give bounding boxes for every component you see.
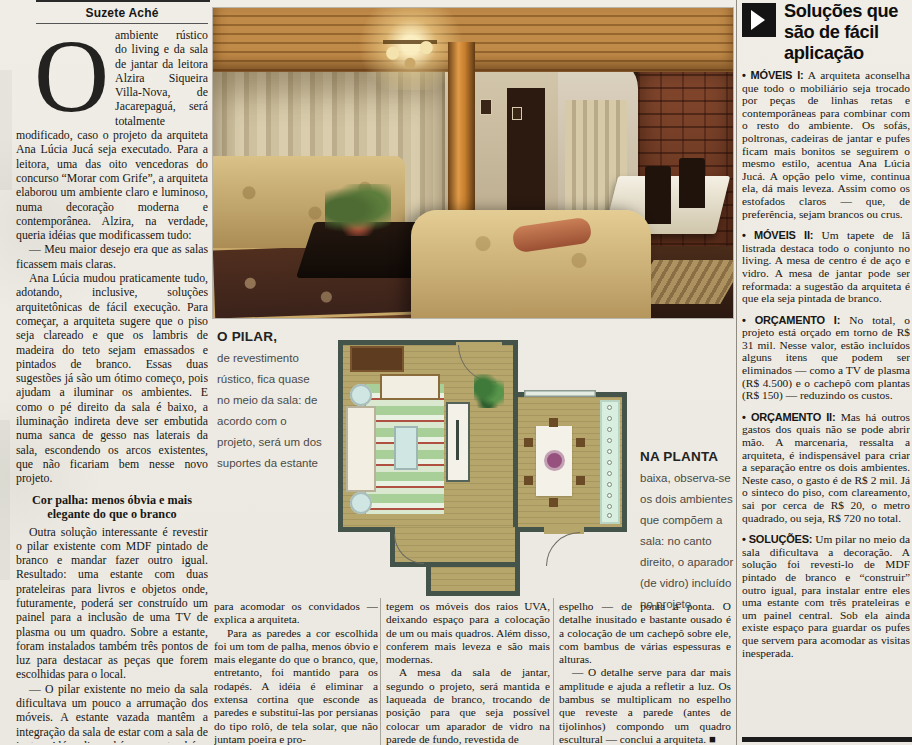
plan-table-centerpiece <box>547 453 562 468</box>
col4-paragraph-1: espelho — de ponta a ponta. O detalhe in… <box>559 600 731 666</box>
plan-estante <box>448 404 468 480</box>
sidebar-item-text: Um pilar no meio da sala dificultava a d… <box>742 533 910 658</box>
photo-dining-chair <box>645 166 671 224</box>
plan-chair <box>524 438 533 447</box>
sidebar-item-moveis-2: • MÓVEIS II: Um tapete de lã listrada de… <box>742 229 910 305</box>
sidebar-rule <box>736 0 737 745</box>
plan-chair <box>524 476 533 485</box>
plan-chair <box>576 476 585 485</box>
plan-pouf <box>350 384 372 406</box>
caption-planta-title: NA PLANTA <box>640 449 718 464</box>
photo-chandelier <box>383 14 437 70</box>
plan-glass-aparador <box>600 400 620 524</box>
col3-paragraph-2: A mesa da sala de jantar, segundo o proj… <box>386 666 550 745</box>
article-column-1: Oambiente rústico do living e da sala de… <box>16 28 208 743</box>
plan-sofa-top <box>382 376 438 398</box>
sidebar-item-moveis-1: • MÓVEIS I: A arquiteta aconselha que to… <box>742 69 910 220</box>
photo-flower-arrangement <box>325 184 391 236</box>
sidebar-bottom-bar <box>742 737 912 742</box>
sidebar-item-orcamento-1: • ORÇAMENTO I: No total, o projeto está … <box>742 314 910 402</box>
margin-bleed <box>0 70 12 190</box>
col4-paragraph-2: — O detalhe serve para dar mais amplitud… <box>559 666 731 745</box>
plan-window <box>524 390 596 397</box>
paragraph-4: — O pilar existente no meio da sala difi… <box>16 682 208 743</box>
sidebar-item-solucoes: • SOLUÇÕES: Um pilar no meio da sala dif… <box>742 533 910 659</box>
article-subhead: Cor palha: menos óbvia e mais elegante d… <box>20 493 204 521</box>
sidebar-item-label: • ORÇAMENTO II: <box>742 411 835 423</box>
sidebar-item-text: A arquiteta aconselha que todo o mobiliá… <box>742 69 910 220</box>
sidebar-item-label: • ORÇAMENTO I: <box>742 314 840 326</box>
drop-cap: O <box>16 28 115 120</box>
living-room-photo <box>213 8 733 318</box>
article-column-3: tegem os móveis dos raios UVA, deixando … <box>386 600 550 745</box>
col2-paragraph-1: para acomodar os convidados — explica a … <box>214 600 378 627</box>
plan-chair <box>549 498 558 507</box>
paragraph-3: Outra solução interessante é revestir o … <box>16 525 208 682</box>
sidebar-item-label: • SOLUÇÕES: <box>742 533 812 545</box>
sidebar-item-text: Mas há outros gastos dos quais não se po… <box>742 411 910 524</box>
quote-paragraph: — Meu maior desejo era que as salas fica… <box>16 242 208 271</box>
photo-wall-picture <box>481 100 491 114</box>
sidebar-item-label: • MÓVEIS I: <box>742 69 803 81</box>
caption-planta-body: baixa, observa-se os dois ambientes que … <box>640 468 740 615</box>
sidebar-item-orcamento-2: • ORÇAMENTO II: Mas há outros gastos dos… <box>742 411 910 524</box>
plan-sofa-left <box>348 408 374 490</box>
newspaper-page: { "byline": "Suzete Aché", "article": { … <box>0 0 912 745</box>
sidebar-title: Soluções que são de fácil aplicação <box>784 0 905 63</box>
plan-plant <box>474 374 504 408</box>
caption-pilar-body: de revestimento rústico, fica quase no m… <box>217 348 325 474</box>
col2-paragraph-2: Para as paredes a cor escolhida foi um t… <box>214 627 378 745</box>
photo-wall-picture <box>513 108 521 119</box>
caption-planta: NA PLANTA baixa, observa-se os dois ambi… <box>640 446 740 615</box>
byline-block: Suzete Aché <box>36 0 208 24</box>
lead-paragraph: Oambiente rústico do living e da sala de… <box>16 28 208 242</box>
plan-chair <box>576 438 585 447</box>
sidebar: Soluções que são de fácil aplicação • MÓ… <box>742 0 910 745</box>
plan-chair <box>549 418 558 427</box>
article-column-4: espelho — de ponta a ponta. O detalhe in… <box>559 600 731 745</box>
caption-pilar-title: O PILAR, <box>217 329 277 344</box>
plan-vestibule <box>426 562 520 596</box>
play-triangle-icon <box>742 3 776 37</box>
col3-paragraph-1: tegem os móveis dos raios UVA, deixando … <box>386 600 550 666</box>
byline: Suzete Aché <box>36 2 208 23</box>
caption-pilar: O PILAR, de revestimento rústico, fica q… <box>217 326 325 474</box>
floor-plan <box>338 334 632 610</box>
sidebar-header: Soluções que são de fácil aplicação <box>742 0 910 63</box>
column-rule <box>380 598 381 745</box>
plan-pouf <box>350 492 372 514</box>
sidebar-item-label: • MÓVEIS II: <box>742 229 813 241</box>
column-rule <box>553 598 554 745</box>
article-column-2: para acomodar os convidados — explica a … <box>214 600 378 745</box>
photo-dining-chair <box>679 158 705 208</box>
margin-bleed <box>0 420 10 580</box>
plan-sideboard <box>350 346 404 372</box>
paragraph-2: Ana Lúcia mudou praticamente tudo, adota… <box>16 271 208 485</box>
sidebar-item-text: No total, o projeto está orçado em torno… <box>742 314 910 402</box>
plan-glass-coffee-table <box>394 426 418 470</box>
byline-rule-bottom <box>36 23 208 24</box>
plan-door-arc-dining <box>546 532 580 566</box>
